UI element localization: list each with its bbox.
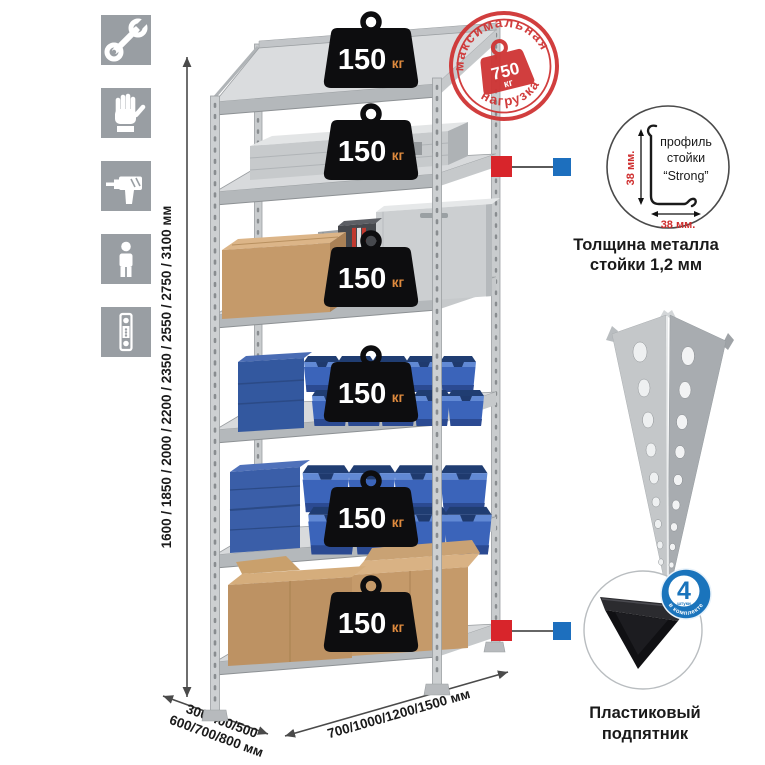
shelf-weight-2: 150 кг: [324, 106, 418, 180]
rack-diagram: 1600 / 1850 / 2000 / 2200 / 2350 / 2550 …: [0, 0, 765, 765]
profile-label-2: стойки: [667, 151, 705, 165]
height-dimension: 1600 / 1850 / 2000 / 2200 / 2350 / 2550 …: [159, 57, 187, 697]
profile-callout-marker: [491, 156, 571, 177]
height-dimension-label: 1600 / 1850 / 2000 / 2200 / 2350 / 2550 …: [159, 206, 174, 549]
foot-caption-2: подпятник: [602, 725, 689, 743]
weight-unit: кг: [392, 515, 405, 530]
blue-container-shelf4: [238, 352, 312, 432]
product-infographic: 1600 / 1850 / 2000 / 2200 / 2350 / 2550 …: [0, 0, 765, 765]
included-badge: 4 штуки в комплекте: [661, 569, 711, 619]
profile-caption-2: стойки 1,2 мм: [590, 256, 702, 274]
profile-label-3: “Strong”: [663, 169, 708, 183]
foot-caption-1: Пластиковый: [589, 704, 700, 722]
weight-unit: кг: [392, 275, 405, 290]
profile-dim-vertical: 38 мм.: [625, 151, 637, 186]
angle-post-image: [606, 310, 734, 598]
blue-container-shelf5: [230, 460, 310, 553]
weight-value: 150: [338, 136, 386, 168]
weight-unit: кг: [392, 148, 405, 163]
max-load-stamp: максимальная нагрузка 750 кг: [440, 2, 568, 130]
weight-value: 150: [338, 44, 386, 76]
profile-label-1: профиль: [660, 135, 712, 149]
weight-unit: кг: [392, 620, 405, 635]
foot-callout-marker: [491, 620, 571, 641]
weight-unit: кг: [392, 56, 405, 71]
profile-dim-horizontal: 38 мм.: [661, 219, 696, 231]
badge-small-label: штуки: [677, 601, 691, 606]
weight-value: 150: [338, 503, 386, 535]
weight-value: 150: [338, 608, 386, 640]
width-dimension: 700/1000/1200/1500 мм: [285, 672, 508, 741]
profile-caption-1: Толщина металла: [573, 236, 719, 254]
weight-unit: кг: [392, 390, 405, 405]
profile-callout: 38 мм. 38 мм. профиль стойки “Strong” То…: [573, 106, 729, 274]
shelf-weight-1: 150 кг: [324, 14, 418, 88]
weight-value: 150: [338, 378, 386, 410]
foot-callout: 4 штуки в комплекте Пластиковый подпятни…: [584, 569, 711, 743]
weight-value: 150: [338, 263, 386, 295]
